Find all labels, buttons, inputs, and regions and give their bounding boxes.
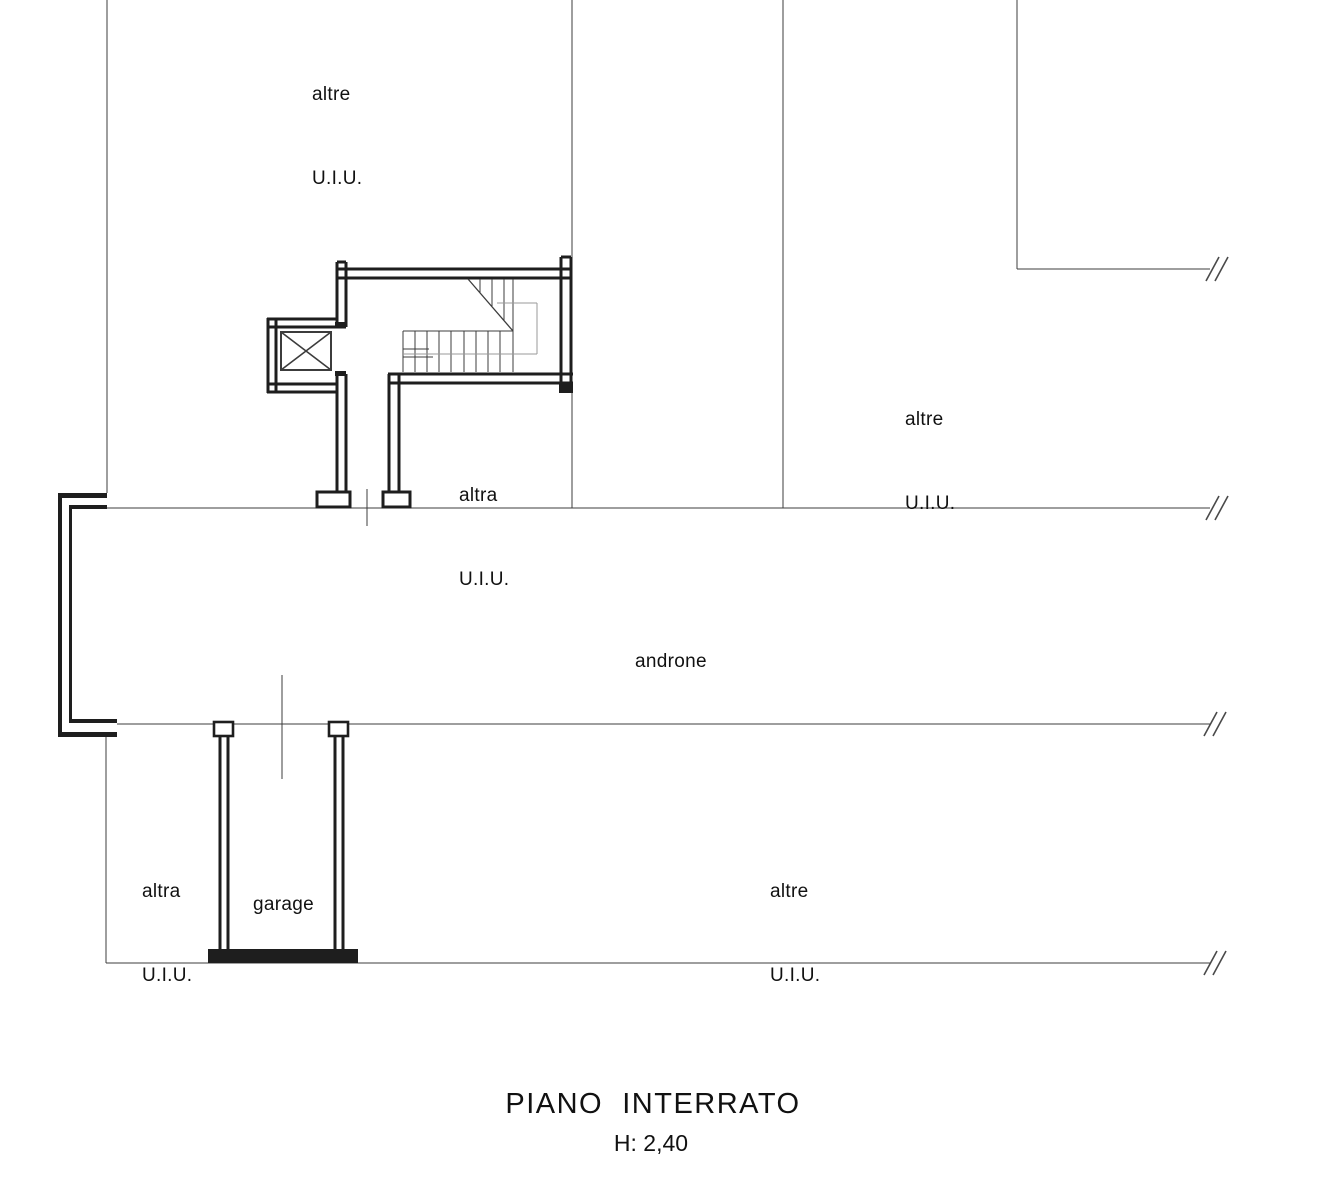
elevator-shaft-walls	[267, 318, 337, 393]
room-label-bottom-right: altre U.I.U.	[770, 822, 820, 1046]
room-label-top-right: altre U.I.U.	[905, 350, 955, 574]
room-label-bottom-left: altra U.I.U.	[142, 822, 192, 1046]
room-label-garage: garage	[253, 835, 314, 975]
floor-plan-page: altre U.I.U. altre U.I.U. altra U.I.U. a…	[0, 0, 1328, 1182]
room-label-line1: altra	[459, 482, 509, 510]
room-label-line1: altre	[905, 406, 955, 434]
room-label-line1: garage	[253, 891, 314, 919]
room-label-stairwell: altra U.I.U.	[459, 426, 509, 650]
room-label-line2: U.I.U.	[142, 962, 192, 990]
stair-enclosure-walls	[336, 257, 573, 497]
stair-break-marks	[403, 349, 433, 357]
staircase-symbol	[403, 279, 513, 372]
room-label-top-left: altre U.I.U.	[312, 25, 362, 249]
door-centerlines	[282, 489, 367, 779]
room-label-line2: U.I.U.	[905, 490, 955, 518]
room-label-androne: androne	[635, 592, 707, 732]
left-bay-wall	[58, 493, 117, 737]
plan-height-label: H: 2,40	[0, 1130, 1302, 1157]
room-label-line1: altre	[312, 81, 362, 109]
thin-partition-walls	[106, 0, 1210, 963]
elevator-x-symbol	[281, 332, 331, 370]
stair-wall-corner-foot	[559, 383, 573, 393]
stair-door-jambs	[317, 492, 410, 507]
room-label-line2: U.I.U.	[459, 566, 509, 594]
room-label-line1: altra	[142, 878, 192, 906]
room-label-line2: U.I.U.	[770, 962, 820, 990]
plan-title: PIANO INTERRATO	[0, 1088, 1306, 1121]
elevator-door-jambs	[335, 322, 346, 376]
room-label-line1: altre	[770, 878, 820, 906]
room-label-line2: U.I.U.	[312, 165, 362, 193]
section-break-hatch	[1204, 257, 1228, 975]
room-label-line1: androne	[635, 648, 707, 676]
stair-landing-gray-outline	[403, 303, 537, 354]
floor-plan-drawing	[0, 0, 1328, 1182]
